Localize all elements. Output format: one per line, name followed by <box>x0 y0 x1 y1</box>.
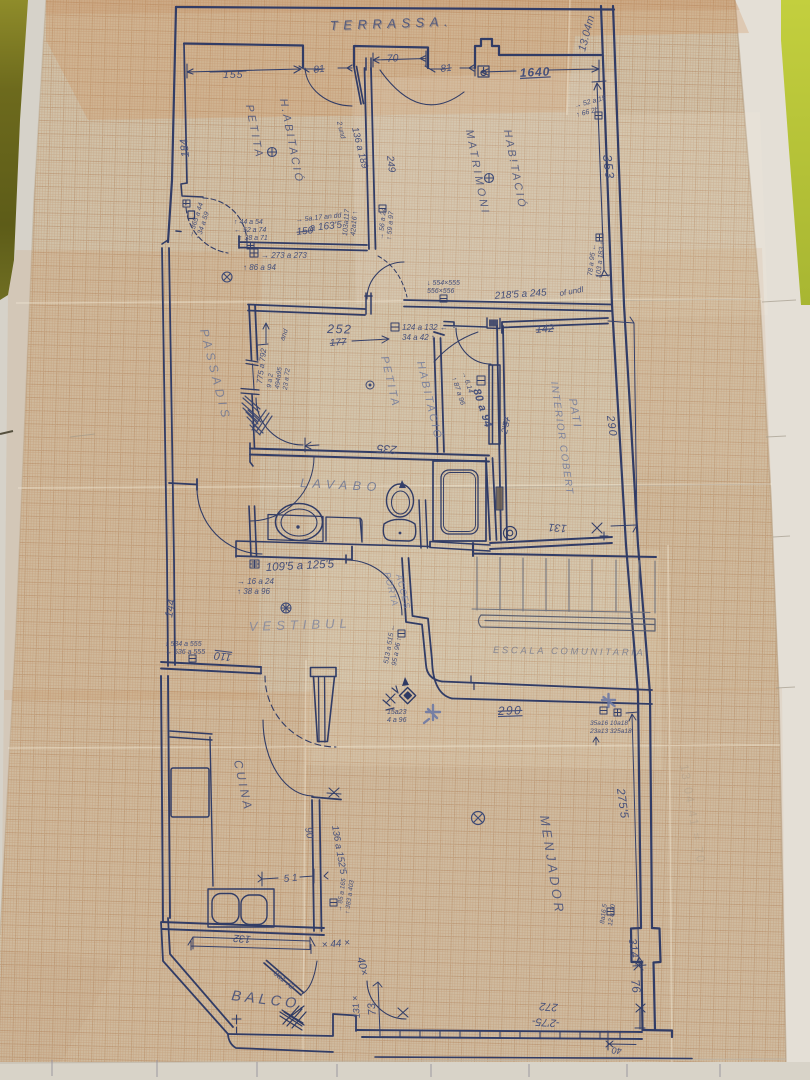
svg-text:↑ 38 a 71: ↑ 38 a 71 <box>239 235 268 242</box>
svg-text:→ 536 a 555: → 536 a 555 <box>165 649 205 656</box>
svg-text:110: 110 <box>213 649 233 663</box>
svg-text:15a23: 15a23 <box>387 709 407 716</box>
svg-text:5 1: 5 1 <box>283 873 298 885</box>
svg-text:→ 273 a 273: → 273 a 273 <box>261 251 307 260</box>
svg-text:70: 70 <box>386 52 399 65</box>
svg-text:→ 16 a 24: → 16 a 24 <box>237 577 274 586</box>
svg-text:23a13 325a18: 23a13 325a18 <box>589 728 632 735</box>
svg-text:249: 249 <box>384 154 397 173</box>
svg-text:252: 252 <box>326 322 353 336</box>
svg-text:34 a 42 ↑: 34 a 42 ↑ <box>402 333 435 342</box>
svg-text:556×556: 556×556 <box>427 288 455 295</box>
svg-text:142: 142 <box>535 323 554 336</box>
svg-text:184: 184 <box>178 138 192 158</box>
svg-text:← 52 a 74: ← 52 a 74 <box>234 227 266 234</box>
svg-text:↑ 44 a 54: ↑ 44 a 54 <box>234 219 263 226</box>
svg-text:235: 235 <box>376 442 398 457</box>
svg-text:-2'75-: -2'75- <box>531 1015 560 1029</box>
svg-text:81: 81 <box>313 64 326 76</box>
svg-text:↓ 554×555: ↓ 554×555 <box>427 280 460 287</box>
svg-text:76: 76 <box>628 978 644 993</box>
svg-text:290: 290 <box>497 703 523 718</box>
svg-text:73: 73 <box>366 1002 379 1016</box>
svg-text:272: 272 <box>539 1000 559 1013</box>
svg-text:↓ 534 a 555: ↓ 534 a 555 <box>165 641 202 648</box>
svg-text:↑ 38 a 96: ↑ 38 a 96 <box>237 587 270 596</box>
svg-text:124 a 132 ←: 124 a 132 ← <box>402 323 448 332</box>
svg-text:131: 131 <box>548 521 567 534</box>
svg-text:↑ 86 a 94: ↑ 86 a 94 <box>243 263 276 272</box>
svg-text:1640: 1640 <box>519 64 550 80</box>
svg-text:177: 177 <box>329 337 347 349</box>
svg-text:4 a 96: 4 a 96 <box>387 717 407 724</box>
svg-text:35a16 10a18: 35a16 10a18 <box>590 720 628 727</box>
